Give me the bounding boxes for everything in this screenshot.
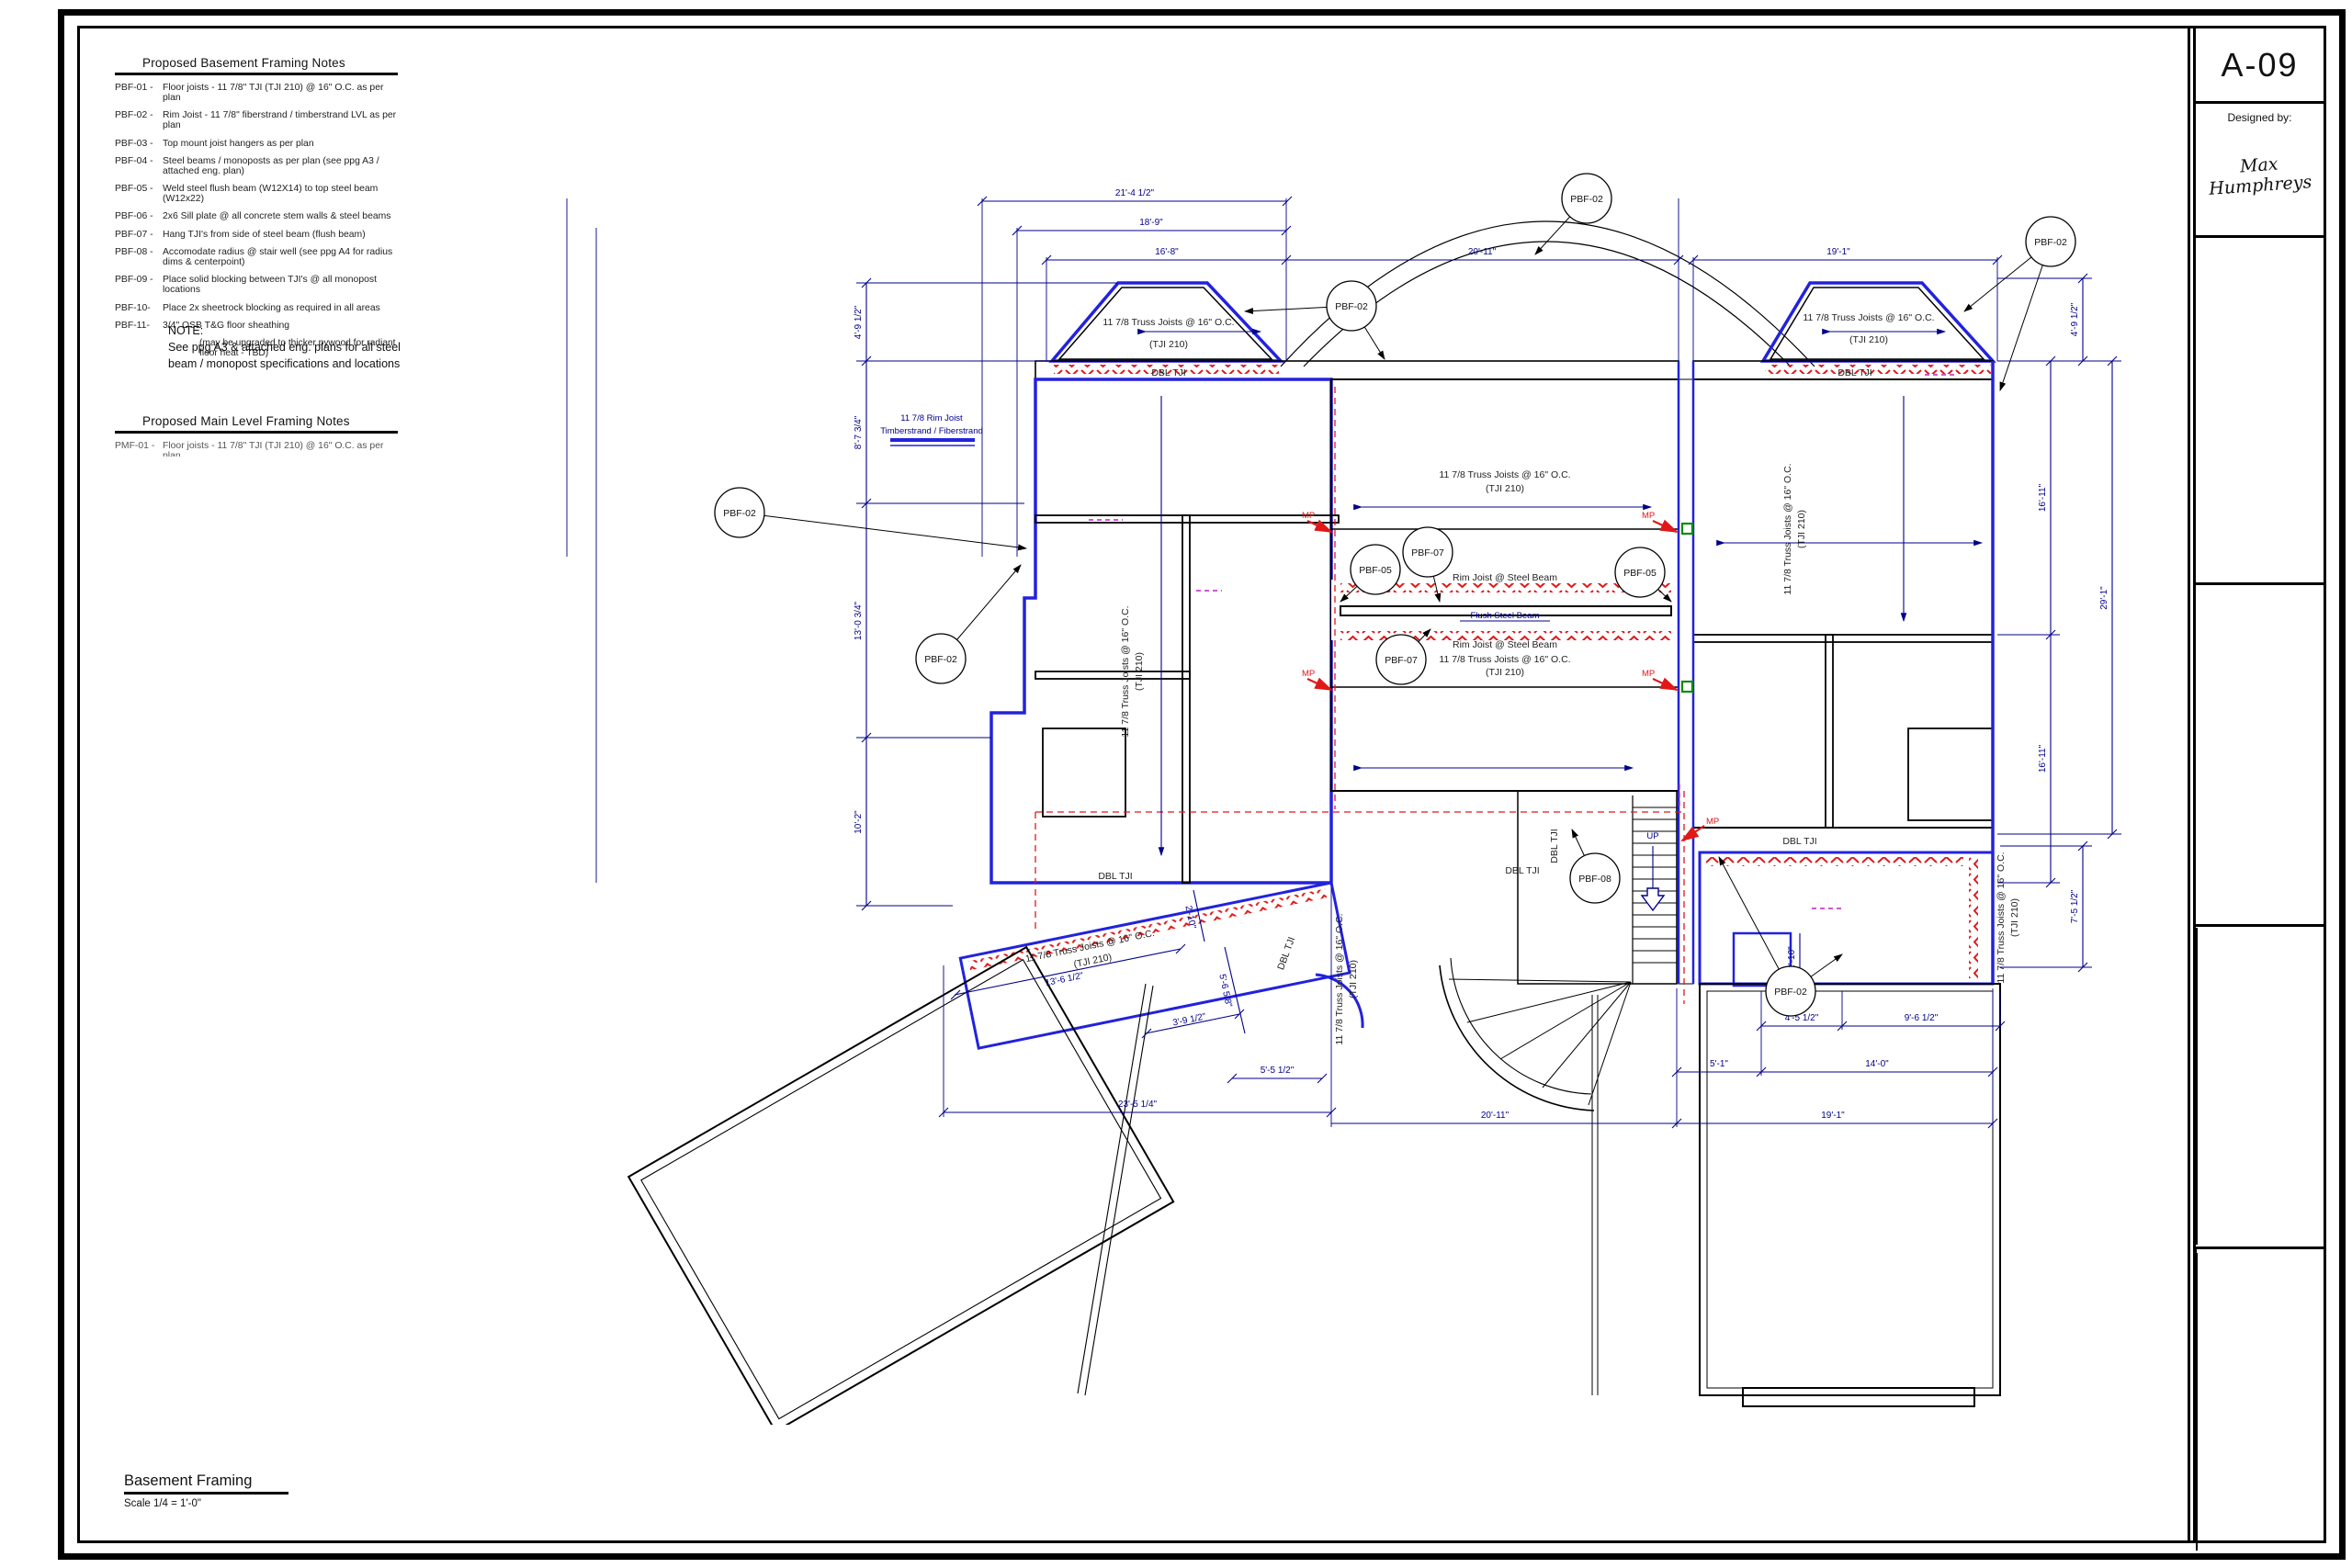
- drawing-title: Basement Framing Scale 1/4 = 1'-0": [124, 1472, 288, 1509]
- note-item: PBF-02 -Rim Joist - 11 7/8" fiberstrand …: [115, 110, 398, 130]
- steel-note: NOTE: See ppg A3 & attached eng. plans f…: [168, 322, 401, 372]
- svg-text:(TJI 210): (TJI 210): [1849, 334, 1888, 345]
- svg-text:PBF-02: PBF-02: [1335, 301, 1368, 312]
- svg-text:DBL TJI: DBL TJI: [1782, 836, 1816, 847]
- svg-text:UP: UP: [1646, 831, 1658, 841]
- svg-text:DBL TJI: DBL TJI: [1151, 367, 1185, 378]
- sheet-outer-border: Proposed Basement Framing Notes PBF-01 -…: [58, 9, 2346, 1560]
- svg-text:16'-11": 16'-11": [2038, 483, 2048, 512]
- svg-text:13'-0 3/4": 13'-0 3/4": [854, 601, 864, 640]
- svg-text:MP: MP: [1302, 511, 1315, 521]
- svg-text:16'-11": 16'-11": [2038, 744, 2048, 773]
- svg-text:8'-7 3/4": 8'-7 3/4": [854, 415, 864, 449]
- callout-pbf02: PBF-02: [1719, 857, 1842, 1016]
- designed-by-block: Designed by: Max Humphreys: [2196, 104, 2324, 238]
- sheet-number: A-09: [2196, 28, 2324, 104]
- note-item: PBF-07 -Hang TJI's from side of steel be…: [115, 230, 398, 240]
- svg-text:PBF-02: PBF-02: [2034, 237, 2067, 248]
- client-block: Custom Architectural Drawing For Ray & S…: [2196, 238, 2324, 585]
- designer-signature: Max Humphreys: [2196, 151, 2324, 200]
- sheet-inner-border: Proposed Basement Framing Notes PBF-01 -…: [77, 26, 2326, 1543]
- svg-text:11 7/8 Truss Joists @ 16" O.C.: 11 7/8 Truss Joists @ 16" O.C.: [1782, 463, 1793, 594]
- floor-plan: MP MP MP MP MP 11 7/8 Truss Joists @ 1: [539, 65, 2285, 1425]
- svg-text:PBF-02: PBF-02: [924, 654, 957, 665]
- company-block: Basement DesignWorks by C&D, Inc. 14 Inv…: [2196, 585, 2324, 927]
- svg-text:20'-11": 20'-11": [1468, 247, 1497, 257]
- note-item: PBF-10-Place 2x sheetrock blocking as re…: [115, 303, 398, 313]
- note-item: PBF-05 -Weld steel flush beam (W12X14) t…: [115, 184, 398, 204]
- note-item: PBF-08 -Accomodate radius @ stair well (…: [115, 247, 398, 267]
- note-item: PBF-03 -Top mount joist hangers as per p…: [115, 139, 398, 149]
- svg-text:13'-6 1/2": 13'-6 1/2": [1045, 971, 1085, 988]
- callout-pbf02: PBF-02: [1535, 174, 1611, 254]
- svg-text:5'-1": 5'-1": [1710, 1059, 1728, 1069]
- note-item: PBF-06 -2x6 Sill plate @ all concrete st…: [115, 211, 398, 221]
- svg-text:PBF-08: PBF-08: [1578, 874, 1611, 885]
- svg-text:PBF-02: PBF-02: [1570, 194, 1603, 205]
- svg-text:16'-8": 16'-8": [1155, 247, 1179, 257]
- svg-text:(TJI 210): (TJI 210): [1149, 339, 1188, 350]
- svg-text:23'-5 1/4": 23'-5 1/4": [1118, 1100, 1158, 1110]
- svg-text:MP: MP: [1642, 669, 1655, 679]
- svg-text:PBF-02: PBF-02: [1774, 987, 1807, 998]
- svg-text:11 7/8 Rim Joist: 11 7/8 Rim Joist: [900, 413, 963, 423]
- svg-text:(TJI 210): (TJI 210): [1073, 952, 1114, 970]
- title-block: A-09 Designed by: Max Humphreys Custom A…: [2193, 28, 2324, 1540]
- svg-text:DBL TJI: DBL TJI: [1275, 935, 1297, 971]
- svg-text:11 7/8 Truss Joists @ 16" O.C.: 11 7/8 Truss Joists @ 16" O.C.: [1996, 852, 2007, 983]
- joist-fields: [628, 283, 2000, 1425]
- svg-text:MP: MP: [1706, 817, 1719, 827]
- svg-text:7'-5 1/2": 7'-5 1/2": [2070, 889, 2080, 923]
- main-note-item: PMF-01 -Floor joists - 11 7/8" TJI (TJI …: [115, 441, 398, 457]
- svg-text:PBF-05: PBF-05: [1623, 568, 1657, 579]
- svg-text:10'-2": 10'-2": [854, 810, 864, 834]
- note-item: PBF-09 -Place solid blocking between TJI…: [115, 275, 398, 295]
- svg-text:4'-9 1/2": 4'-9 1/2": [854, 305, 864, 339]
- svg-text:(TJI 210): (TJI 210): [1796, 510, 1807, 548]
- svg-text:(TJI 210): (TJI 210): [1486, 667, 1524, 678]
- svg-text:3'-9 1/2": 3'-9 1/2": [1171, 1011, 1206, 1028]
- svg-text:MP: MP: [1642, 511, 1655, 521]
- revision-table-initial: Date: Revision: Description: 1 Draft 1 0…: [2196, 1249, 2324, 1552]
- svg-text:11 7/8 Truss Joists @ 16" O.C.: 11 7/8 Truss Joists @ 16" O.C.: [1439, 469, 1570, 480]
- callout-pbf02: PBF-02: [715, 488, 1026, 548]
- svg-text:11 7/8 Truss Joists @ 16" O.C.: 11 7/8 Truss Joists @ 16" O.C.: [1102, 317, 1234, 328]
- svg-text:14'-0": 14'-0": [1865, 1059, 1889, 1069]
- svg-text:(TJI 210): (TJI 210): [1486, 483, 1524, 494]
- main-level-framing-notes: Proposed Main Level Framing Notes PMF-01…: [115, 414, 398, 457]
- note-item: PBF-04 -Steel beams / monoposts as per p…: [115, 156, 398, 176]
- svg-text:19'-1": 19'-1": [1826, 247, 1850, 257]
- svg-text:PBF-02: PBF-02: [723, 508, 756, 519]
- svg-text:MP: MP: [1302, 669, 1315, 679]
- svg-text:Timberstrand / Fiberstrand: Timberstrand / Fiberstrand: [880, 426, 983, 436]
- svg-text:18'-9": 18'-9": [1139, 218, 1163, 228]
- svg-text:(TJI 210): (TJI 210): [2009, 898, 2020, 937]
- revision-table-recent: Date: Revision: Description: 7 Draft 7 0…: [2196, 927, 2324, 1249]
- svg-text:DBL TJI: DBL TJI: [1549, 829, 1560, 863]
- callout-pbf02: PBF-02: [916, 565, 1021, 683]
- svg-text:5'-6 5/8": 5'-6 5/8": [1216, 973, 1233, 1009]
- svg-text:(TJI 210): (TJI 210): [1348, 960, 1359, 998]
- svg-text:21'-4 1/2": 21'-4 1/2": [1115, 188, 1155, 198]
- svg-text:20'-11": 20'-11": [1481, 1111, 1510, 1121]
- callout-pbf02: PBF-02: [1964, 217, 2075, 390]
- svg-text:11 7/8 Truss Joists @ 16" O.C.: 11 7/8 Truss Joists @ 16" O.C.: [1439, 654, 1570, 665]
- svg-text:Flush Steel Beam: Flush Steel Beam: [1471, 611, 1540, 621]
- svg-text:9'-6 1/2": 9'-6 1/2": [1905, 1013, 1939, 1023]
- svg-text:PBF-05: PBF-05: [1359, 565, 1392, 576]
- main-notes-title: Proposed Main Level Framing Notes: [115, 414, 398, 434]
- notes-title: Proposed Basement Framing Notes: [115, 56, 398, 75]
- basement-framing-notes: Proposed Basement Framing Notes PBF-01 -…: [115, 56, 398, 358]
- designed-by-label: Designed by:: [2196, 111, 2324, 124]
- svg-text:PBF-07: PBF-07: [1385, 655, 1418, 666]
- svg-text:(TJI 210): (TJI 210): [1134, 652, 1145, 691]
- svg-text:Rim Joist @ Steel Beam: Rim Joist @ Steel Beam: [1453, 639, 1557, 650]
- svg-text:DBL TJI: DBL TJI: [1098, 871, 1132, 882]
- svg-text:29'-1": 29'-1": [2099, 586, 2109, 610]
- svg-text:11 7/8 Truss Joists @ 16" O.C.: 11 7/8 Truss Joists @ 16" O.C.: [1120, 605, 1131, 737]
- svg-text:11 7/8 Truss Joists @ 16" O.C.: 11 7/8 Truss Joists @ 16" O.C.: [1803, 312, 1934, 323]
- svg-text:Rim Joist @ Steel Beam: Rim Joist @ Steel Beam: [1453, 572, 1557, 583]
- svg-text:DBL TJI: DBL TJI: [1505, 865, 1539, 876]
- note-item: PBF-01 -Floor joists - 11 7/8" TJI (TJI …: [115, 83, 398, 103]
- svg-text:4'-9 1/2": 4'-9 1/2": [2070, 302, 2080, 336]
- svg-text:PBF-07: PBF-07: [1411, 547, 1444, 558]
- svg-text:19'-1": 19'-1": [1821, 1111, 1845, 1121]
- svg-text:11 7/8 Truss Joists @ 16" O.C.: 11 7/8 Truss Joists @ 16" O.C.: [1334, 913, 1345, 1044]
- callout-pbf08: PBF-08: [1570, 829, 1620, 903]
- svg-text:5'-5 1/2": 5'-5 1/2": [1261, 1066, 1295, 1076]
- svg-text:DBL TJI: DBL TJI: [1837, 367, 1871, 378]
